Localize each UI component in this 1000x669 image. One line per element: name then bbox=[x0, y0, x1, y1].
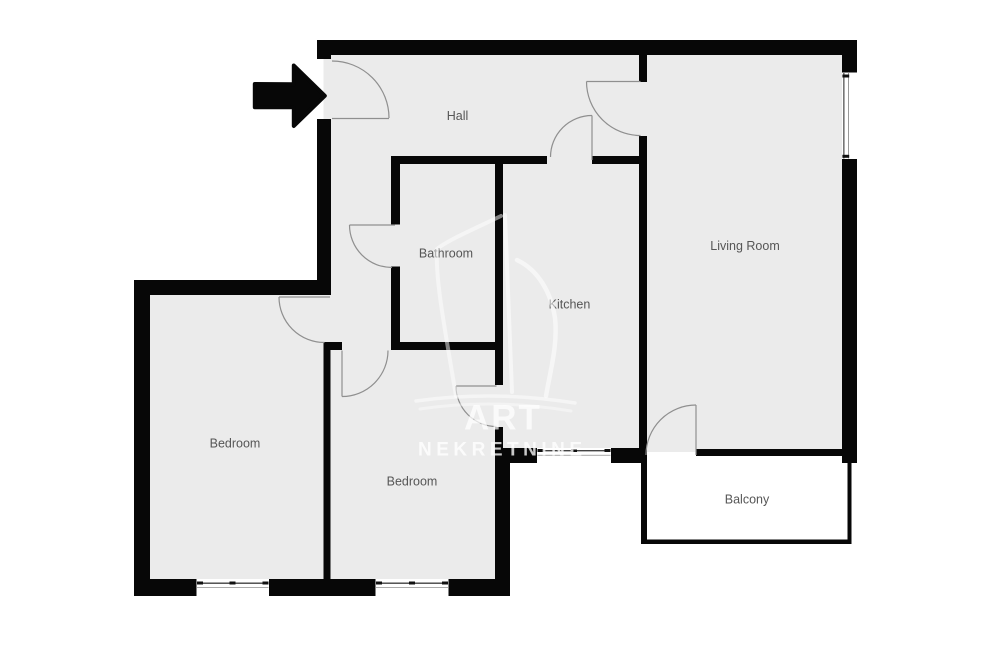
svg-text:Bathroom: Bathroom bbox=[419, 247, 473, 261]
svg-text:Bedroom: Bedroom bbox=[210, 437, 261, 451]
svg-text:Living Room: Living Room bbox=[710, 239, 779, 253]
svg-text:Balcony: Balcony bbox=[725, 493, 770, 507]
svg-text:Bedroom: Bedroom bbox=[387, 475, 438, 489]
svg-text:ART: ART bbox=[464, 399, 542, 438]
svg-text:Hall: Hall bbox=[447, 109, 469, 123]
svg-text:NEKRETNINE: NEKRETNINE bbox=[418, 440, 587, 461]
